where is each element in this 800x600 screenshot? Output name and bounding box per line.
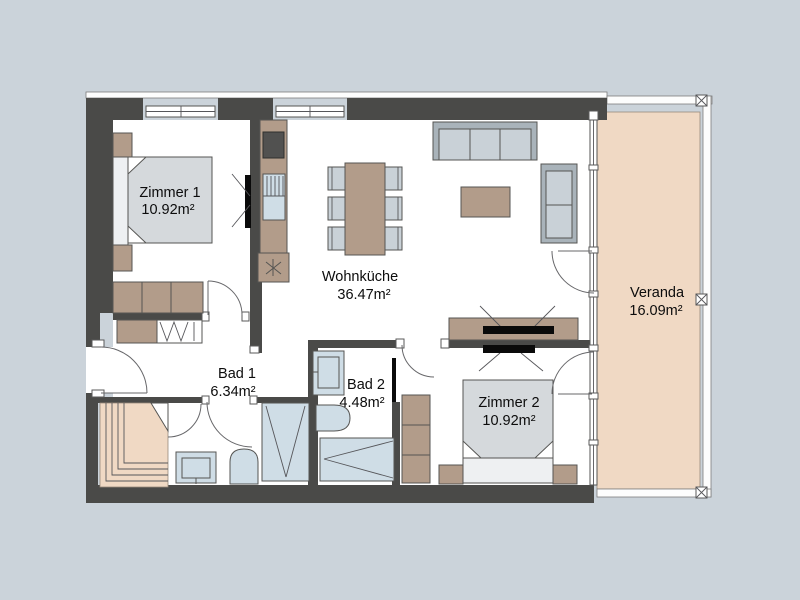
railing-post-icon xyxy=(696,294,707,305)
wardrobe-icon xyxy=(402,395,430,483)
bad1-north-wall-right xyxy=(252,397,308,403)
room-area-zimmer1: 10.92m² xyxy=(141,202,194,218)
nightstand-icon xyxy=(439,465,463,484)
shower-icon xyxy=(262,403,309,481)
top-wall-segment xyxy=(86,98,143,120)
room-label-bad2: Bad 2 xyxy=(347,377,385,393)
sink-dishwasher-icon xyxy=(263,174,285,220)
zimmer1-south-wall xyxy=(113,313,208,320)
room-area-bad2: 4.48m² xyxy=(339,395,384,411)
wall-end-post xyxy=(589,111,598,120)
top-wall-segment xyxy=(218,98,273,120)
veranda-railing-bottom xyxy=(597,489,711,497)
window-icon xyxy=(276,106,344,117)
room-label-zimmer2: Zimmer 2 xyxy=(478,395,539,411)
bottom-wall xyxy=(86,485,594,503)
entry-opening xyxy=(86,347,113,393)
room-label-veranda: Veranda xyxy=(630,285,685,301)
sliding-door-icon xyxy=(392,358,396,402)
zimmer1-furniture xyxy=(113,133,212,343)
room-label-bad1: Bad 1 xyxy=(218,366,256,382)
toilet-icon xyxy=(230,449,258,484)
window-icon xyxy=(146,106,215,117)
left-wall-upper xyxy=(86,120,113,313)
glass-wall xyxy=(589,111,598,485)
sofa-icon xyxy=(433,122,537,160)
bathtub-icon xyxy=(320,438,394,481)
left-wall-lower xyxy=(86,393,98,485)
railing-post-icon xyxy=(696,487,707,498)
dining-table-icon xyxy=(328,163,402,255)
nightstand-icon xyxy=(553,465,577,484)
tv-icon xyxy=(483,326,554,334)
nightstand-icon xyxy=(113,133,132,157)
room-label-wohnkueche: Wohnküche xyxy=(322,269,398,285)
room-area-wohnkueche: 36.47m² xyxy=(337,287,390,303)
stove-symbol-icon xyxy=(258,253,289,282)
room-area-zimmer2: 10.92m² xyxy=(482,413,535,429)
oven-icon xyxy=(263,132,284,158)
top-wall-segment xyxy=(347,98,607,120)
room-area-veranda: 16.09m² xyxy=(629,303,682,319)
room-area-bad1: 6.34m² xyxy=(210,384,255,400)
bad1-north-wall-left xyxy=(98,397,207,403)
coffee-table-icon xyxy=(461,187,510,217)
wardrobe-icon xyxy=(117,320,202,343)
bed-icon xyxy=(113,157,212,245)
washbasin-icon xyxy=(313,351,344,395)
bad2-north-wall xyxy=(308,340,398,348)
nightstand-icon xyxy=(113,245,132,271)
room-label-zimmer1: Zimmer 1 xyxy=(139,185,200,201)
floor-plan: Zimmer 1 10.92m² Wohnküche 36.47m² Veran… xyxy=(0,0,800,600)
washbasin-icon xyxy=(176,452,216,484)
facade-line xyxy=(86,92,607,98)
dresser-icon xyxy=(113,282,203,313)
sofa-icon xyxy=(541,164,577,243)
railing-post-icon xyxy=(696,95,707,106)
